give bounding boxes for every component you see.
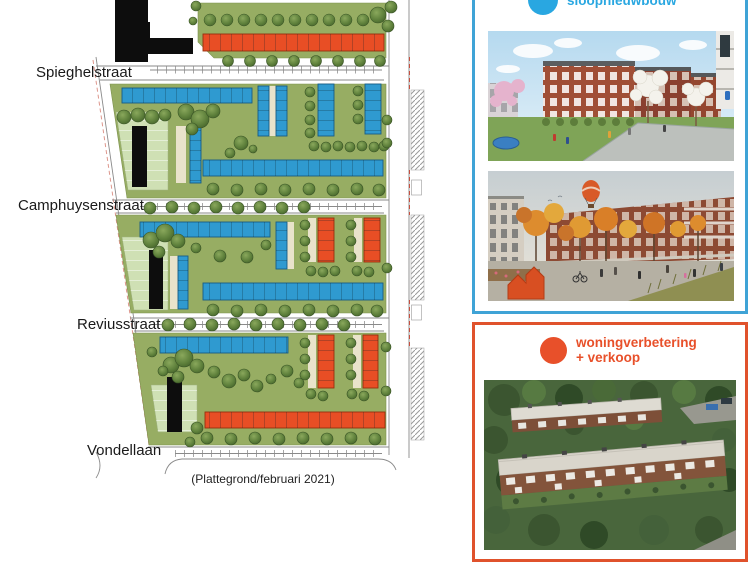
street-label-camphuysenstraat: Camphuysenstraat	[18, 197, 145, 214]
orange-legend-dot	[540, 337, 567, 364]
legend-woningverbetering: woningverbetering + verkoop	[540, 335, 697, 365]
street-label-reviusstraat: Reviusstraat	[77, 316, 161, 333]
street-label-vondellaan: Vondellaan	[87, 442, 161, 459]
legend-sloopnieuwbouw: sloopnieuwbouw	[528, 0, 677, 15]
panel-woningverbetering: woningverbetering + verkoop	[472, 322, 748, 562]
blue-legend-dot	[528, 0, 558, 15]
neighborhood-map: Spieghelstraat Camphuysenstraat Reviusst…	[0, 0, 465, 500]
legend-label-sloopnieuwbouw: sloopnieuwbouw	[567, 0, 677, 8]
legend-label-woningverbetering: woningverbetering + verkoop	[576, 335, 697, 365]
rendering-new-build-autumn	[488, 171, 734, 301]
street-label-spieghelstraat: Spieghelstraat	[36, 64, 133, 81]
rendering-new-build-spring	[488, 31, 734, 161]
panel-sloopnieuwbouw: sloopnieuwbouw	[472, 0, 748, 314]
photo-row-houses-aerial	[484, 380, 736, 550]
map-caption: (Plattegrond/februari 2021)	[191, 472, 334, 486]
